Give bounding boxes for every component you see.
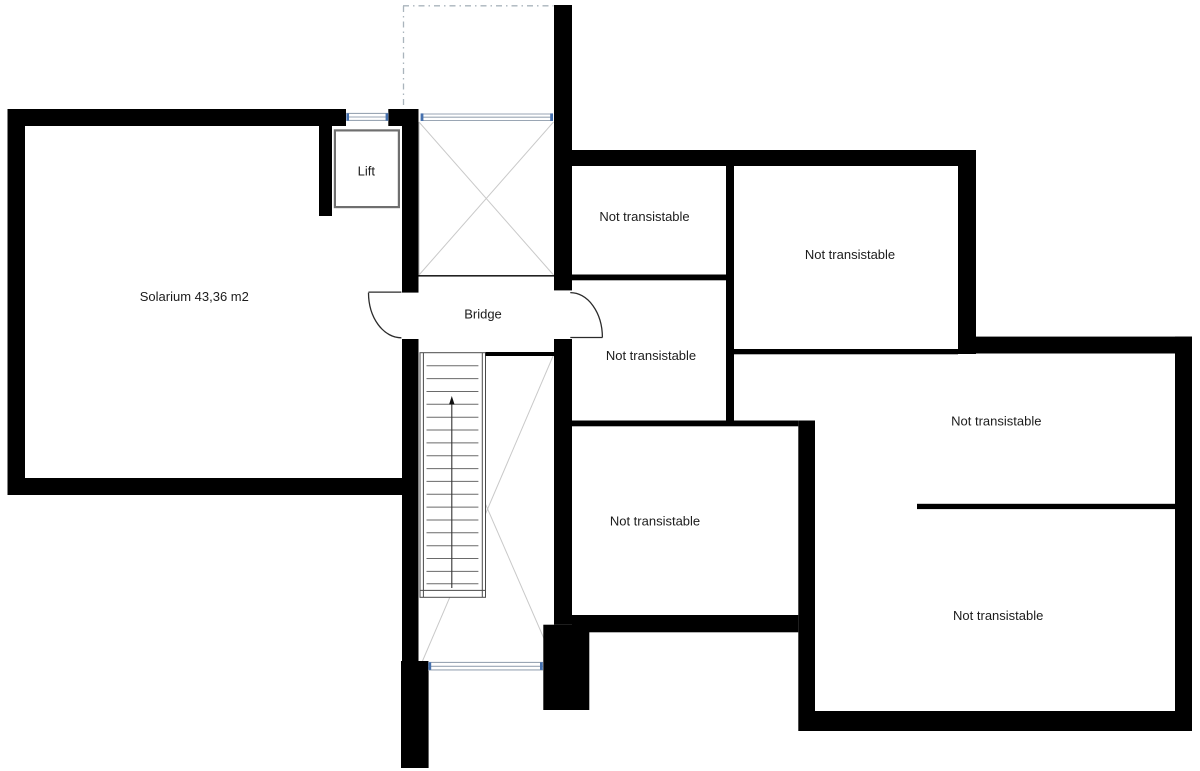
svg-text:Lift: Lift bbox=[358, 163, 376, 178]
svg-text:Not transistable: Not transistable bbox=[610, 514, 700, 529]
svg-text:Not transistable: Not transistable bbox=[805, 247, 895, 262]
svg-text:Not transistable: Not transistable bbox=[953, 608, 1043, 623]
svg-text:Not transistable: Not transistable bbox=[951, 413, 1041, 428]
svg-text:Not transistable: Not transistable bbox=[599, 209, 689, 224]
svg-text:Not transistable: Not transistable bbox=[606, 348, 696, 363]
svg-text:Bridge: Bridge bbox=[464, 307, 502, 322]
svg-text:Solarium 43,36 m2: Solarium 43,36 m2 bbox=[140, 289, 249, 304]
